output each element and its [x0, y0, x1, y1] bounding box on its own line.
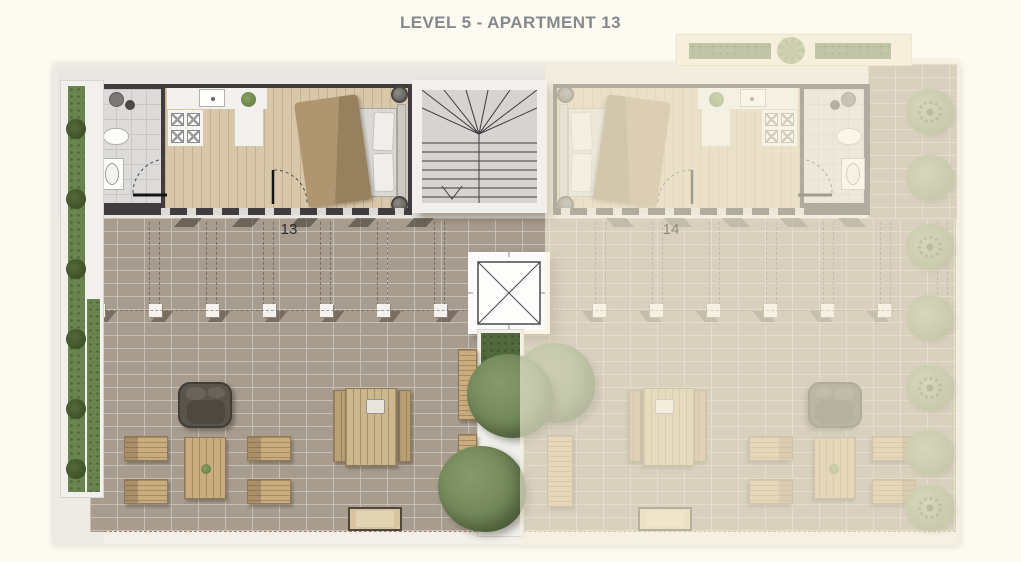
- dining-bench: [398, 390, 411, 462]
- planter-hedge: [87, 299, 100, 492]
- hot-tub-cushion: [186, 387, 206, 400]
- sun-lounger: [124, 479, 168, 504]
- outdoor-bench: [348, 507, 402, 531]
- door-swings: [95, 84, 412, 215]
- sun-lounger: [124, 436, 168, 461]
- stairwell: [412, 80, 547, 213]
- stair-treads: [422, 90, 537, 203]
- table-plant: [201, 464, 211, 474]
- pergola-guide-line: [90, 310, 520, 313]
- label-apartment-13: 13: [272, 221, 306, 238]
- planter-bush: [66, 399, 86, 419]
- pergola-guide-dashes: [377, 222, 388, 310]
- pergola-guide-dashes: [206, 222, 217, 310]
- planter-bush: [66, 259, 86, 279]
- coffee-table: [184, 437, 226, 499]
- stair-floor: [422, 90, 537, 203]
- hot-tub: [178, 382, 232, 428]
- glazing-shadow: [348, 218, 376, 227]
- planter-bush: [66, 119, 86, 139]
- pergola-guide-dashes: [149, 222, 160, 310]
- planter-hedge: [68, 86, 85, 492]
- skylight-cross: [468, 252, 550, 334]
- left-planter: [60, 80, 104, 498]
- apartment-13-interior: [95, 84, 412, 215]
- bench-seat: [356, 511, 394, 527]
- label-apartment-14: 14: [654, 221, 688, 238]
- pergola-guide-dashes: [320, 222, 331, 310]
- hot-tub-well: [187, 400, 225, 424]
- floor-plan-page: LEVEL 5 - APARTMENT 13: [0, 0, 1021, 562]
- tree: [438, 446, 526, 532]
- page-title: LEVEL 5 - APARTMENT 13: [0, 13, 1021, 33]
- hot-tub-cushion: [208, 387, 225, 398]
- glazing-shadow: [232, 218, 260, 227]
- table-tray: [366, 399, 385, 414]
- glazing-shadow: [406, 218, 434, 227]
- sun-lounger: [247, 436, 291, 461]
- planter-bush: [66, 189, 86, 209]
- dining-table: [345, 388, 397, 466]
- skylight-shaft: [468, 252, 550, 334]
- sun-lounger: [247, 479, 291, 504]
- pergola-guide-dashes: [434, 222, 445, 310]
- planter-bush: [66, 459, 86, 479]
- glazing-shadow: [174, 218, 202, 227]
- planter-bush: [66, 329, 86, 349]
